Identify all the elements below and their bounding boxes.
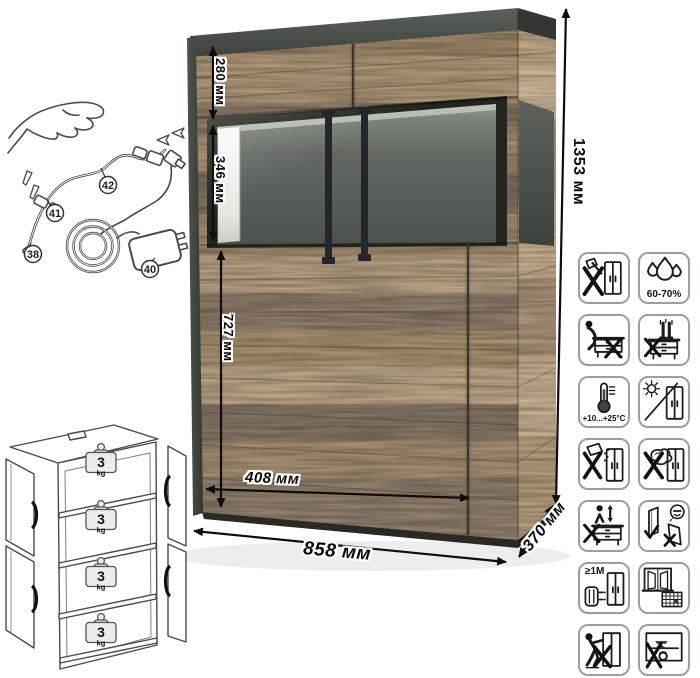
dimension-label-glass-section: 346 мм: [213, 156, 228, 204]
no-heavy-load-icon: [641, 627, 687, 673]
dimension-label-height: 1353 мм: [569, 138, 587, 205]
side-glass: [519, 100, 554, 246]
care-icon-store-panels-upright: [638, 500, 690, 552]
humidity-label: 60-70%: [640, 290, 688, 300]
care-icon-no-sunlight: [638, 376, 690, 428]
right-door-lower: [168, 544, 186, 642]
dimension-label-bottom-section: 727 мм: [221, 314, 236, 362]
callout-41: 41: [49, 208, 61, 220]
no-sitting-icon: [581, 317, 627, 363]
arrow-1353: [556, 9, 566, 504]
no-dragging-icon: [581, 627, 627, 673]
care-icon-no-sitting: [578, 314, 630, 366]
heat-distance-label: ≥1M: [585, 567, 604, 577]
shelf-load-diagram: 3 kg 3 kg 3 kg 3 kg: [2, 418, 192, 678]
hand-sketch: [8, 102, 104, 153]
left-door-upper: [6, 459, 34, 556]
weight-unit: kg: [97, 469, 106, 478]
care-icon-no-standing: [638, 314, 690, 366]
no-axe-icon: [581, 255, 627, 301]
weight-unit: kg: [97, 639, 106, 648]
product-sheet: 280 мм 346 мм 727 мм 1353 мм 408 мм 858 …: [0, 0, 700, 678]
dimension-label-door-width: 408 мм: [245, 469, 300, 488]
weight-unit: kg: [97, 583, 106, 592]
care-icon-ventilate-room: [638, 562, 690, 614]
glass-showcase: [207, 96, 507, 248]
care-icon-no-spilling: [578, 438, 630, 490]
care-icon-no-abrasive-cleaning: [638, 438, 690, 490]
panels-upright-icon: [641, 503, 687, 549]
led-wiring-diagram: 42 41 38 40: [5, 98, 190, 290]
led-connector: [132, 145, 164, 166]
no-standing-icon: [641, 317, 687, 363]
care-icon-temperature: +10...+25°C: [578, 376, 630, 428]
care-icon-grid: 60-70%: [578, 252, 690, 676]
care-icon-humidity: 60-70%: [638, 252, 690, 304]
callout-38: 38: [27, 249, 39, 261]
care-icon-no-sharp-tools: [578, 252, 630, 304]
dc-plug: [164, 150, 187, 171]
no-spill-icon: [581, 441, 627, 487]
open-window-icon: [641, 565, 687, 611]
right-door-upper: [168, 446, 186, 546]
no-sponge-icon: [641, 441, 687, 487]
care-icon-keep-from-heat: ≥1M: [578, 562, 630, 614]
glass-reflection: [207, 96, 507, 248]
callout-42: 42: [102, 180, 114, 192]
left-door-lower: [6, 546, 34, 648]
temperature-label: +10...+25°C: [580, 415, 628, 423]
no-jumping-icon: [581, 503, 627, 549]
dimension-label-top-section: 280 мм: [213, 58, 228, 106]
care-icon-no-heavy-objects: [638, 624, 690, 676]
callout-40: 40: [144, 264, 156, 276]
care-icon-no-dragging: [578, 624, 630, 676]
no-sun-icon: [641, 379, 687, 425]
weight-unit: kg: [97, 526, 106, 535]
care-icon-no-climbing: [578, 500, 630, 552]
